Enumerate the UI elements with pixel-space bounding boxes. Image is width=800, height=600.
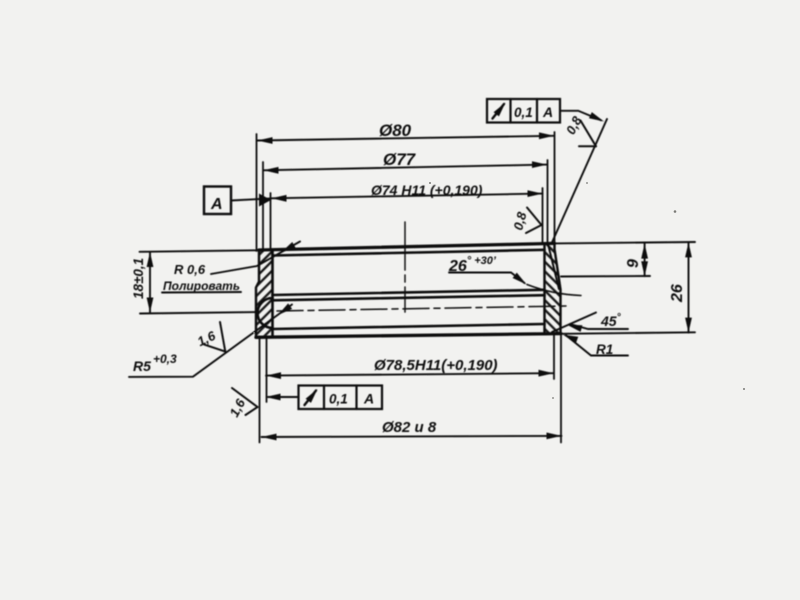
svg-text:Ø77: Ø77 [383, 150, 417, 169]
svg-text:0,1: 0,1 [514, 105, 533, 120]
svg-text:+0,3: +0,3 [153, 352, 177, 366]
svg-text:R5: R5 [133, 358, 151, 374]
svg-text:A: A [542, 104, 553, 120]
svg-text:26: 26 [669, 284, 686, 303]
svg-text:Ø80: Ø80 [379, 121, 412, 140]
svg-text:A: A [210, 196, 223, 213]
svg-text:Ø74 H11 (+0,190): Ø74 H11 (+0,190) [371, 182, 483, 198]
svg-text:Полировать: Полировать [163, 279, 240, 293]
svg-text:18±0,1: 18±0,1 [131, 258, 146, 299]
svg-text:Ø78,5H11(+0,190): Ø78,5H11(+0,190) [374, 357, 498, 374]
svg-text:9: 9 [625, 259, 642, 268]
svg-text:R 0,6: R 0,6 [174, 262, 206, 277]
svg-text:0,1: 0,1 [329, 392, 348, 407]
svg-text:Ø82 и 8: Ø82 и 8 [382, 419, 437, 436]
svg-text:A: A [363, 391, 374, 407]
